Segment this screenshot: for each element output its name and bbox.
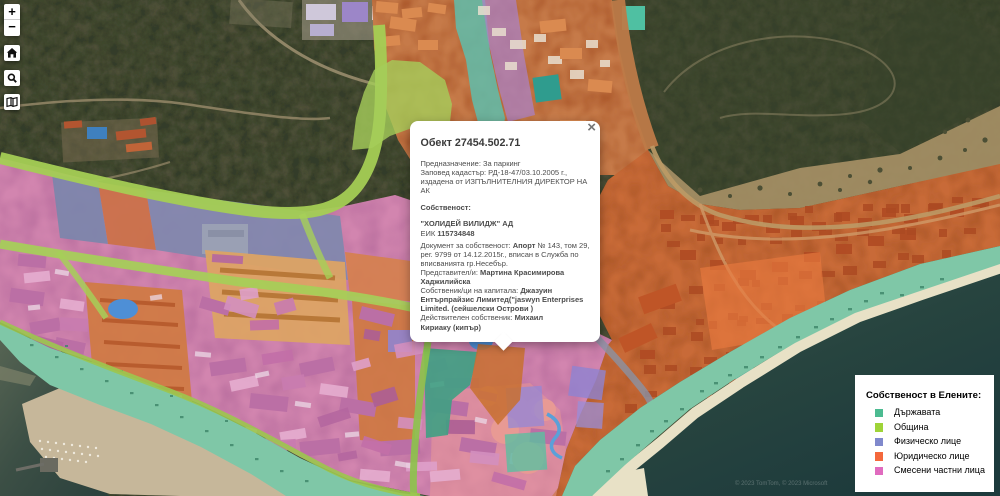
svg-text:© 2023 TomTom, © 2023 Microsof: © 2023 TomTom, © 2023 Microsoft	[735, 480, 828, 487]
